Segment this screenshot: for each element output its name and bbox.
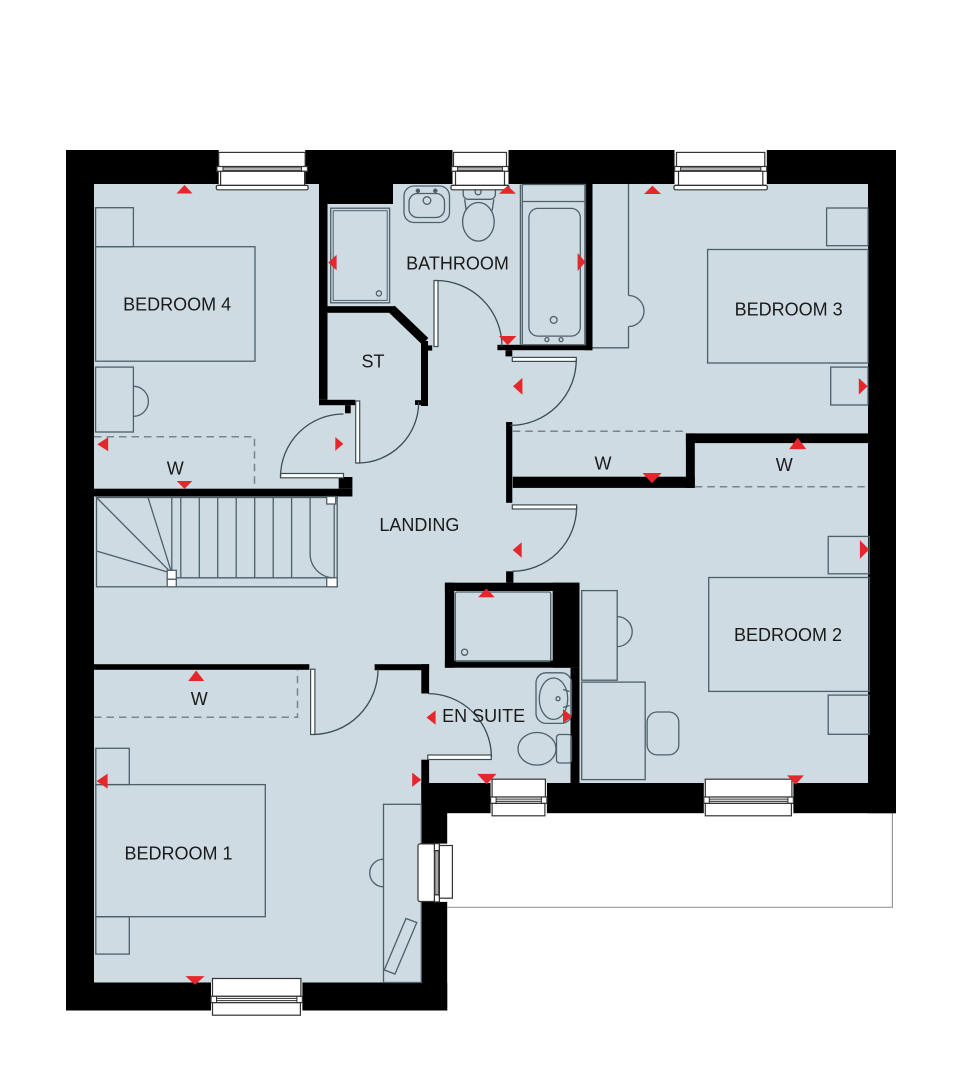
svg-text:BEDROOM 1: BEDROOM 1	[124, 844, 232, 864]
svg-text:BATHROOM: BATHROOM	[406, 254, 509, 274]
svg-text:W: W	[776, 455, 793, 475]
svg-text:EN SUITE: EN SUITE	[442, 706, 525, 726]
svg-text:W: W	[595, 454, 612, 474]
svg-text:BEDROOM 2: BEDROOM 2	[734, 625, 842, 645]
svg-text:LANDING: LANDING	[379, 515, 459, 535]
svg-text:W: W	[167, 459, 184, 479]
svg-text:ST: ST	[361, 352, 384, 372]
svg-text:W: W	[191, 689, 208, 709]
svg-text:BEDROOM 4: BEDROOM 4	[123, 295, 231, 315]
svg-text:BEDROOM 3: BEDROOM 3	[735, 300, 843, 320]
